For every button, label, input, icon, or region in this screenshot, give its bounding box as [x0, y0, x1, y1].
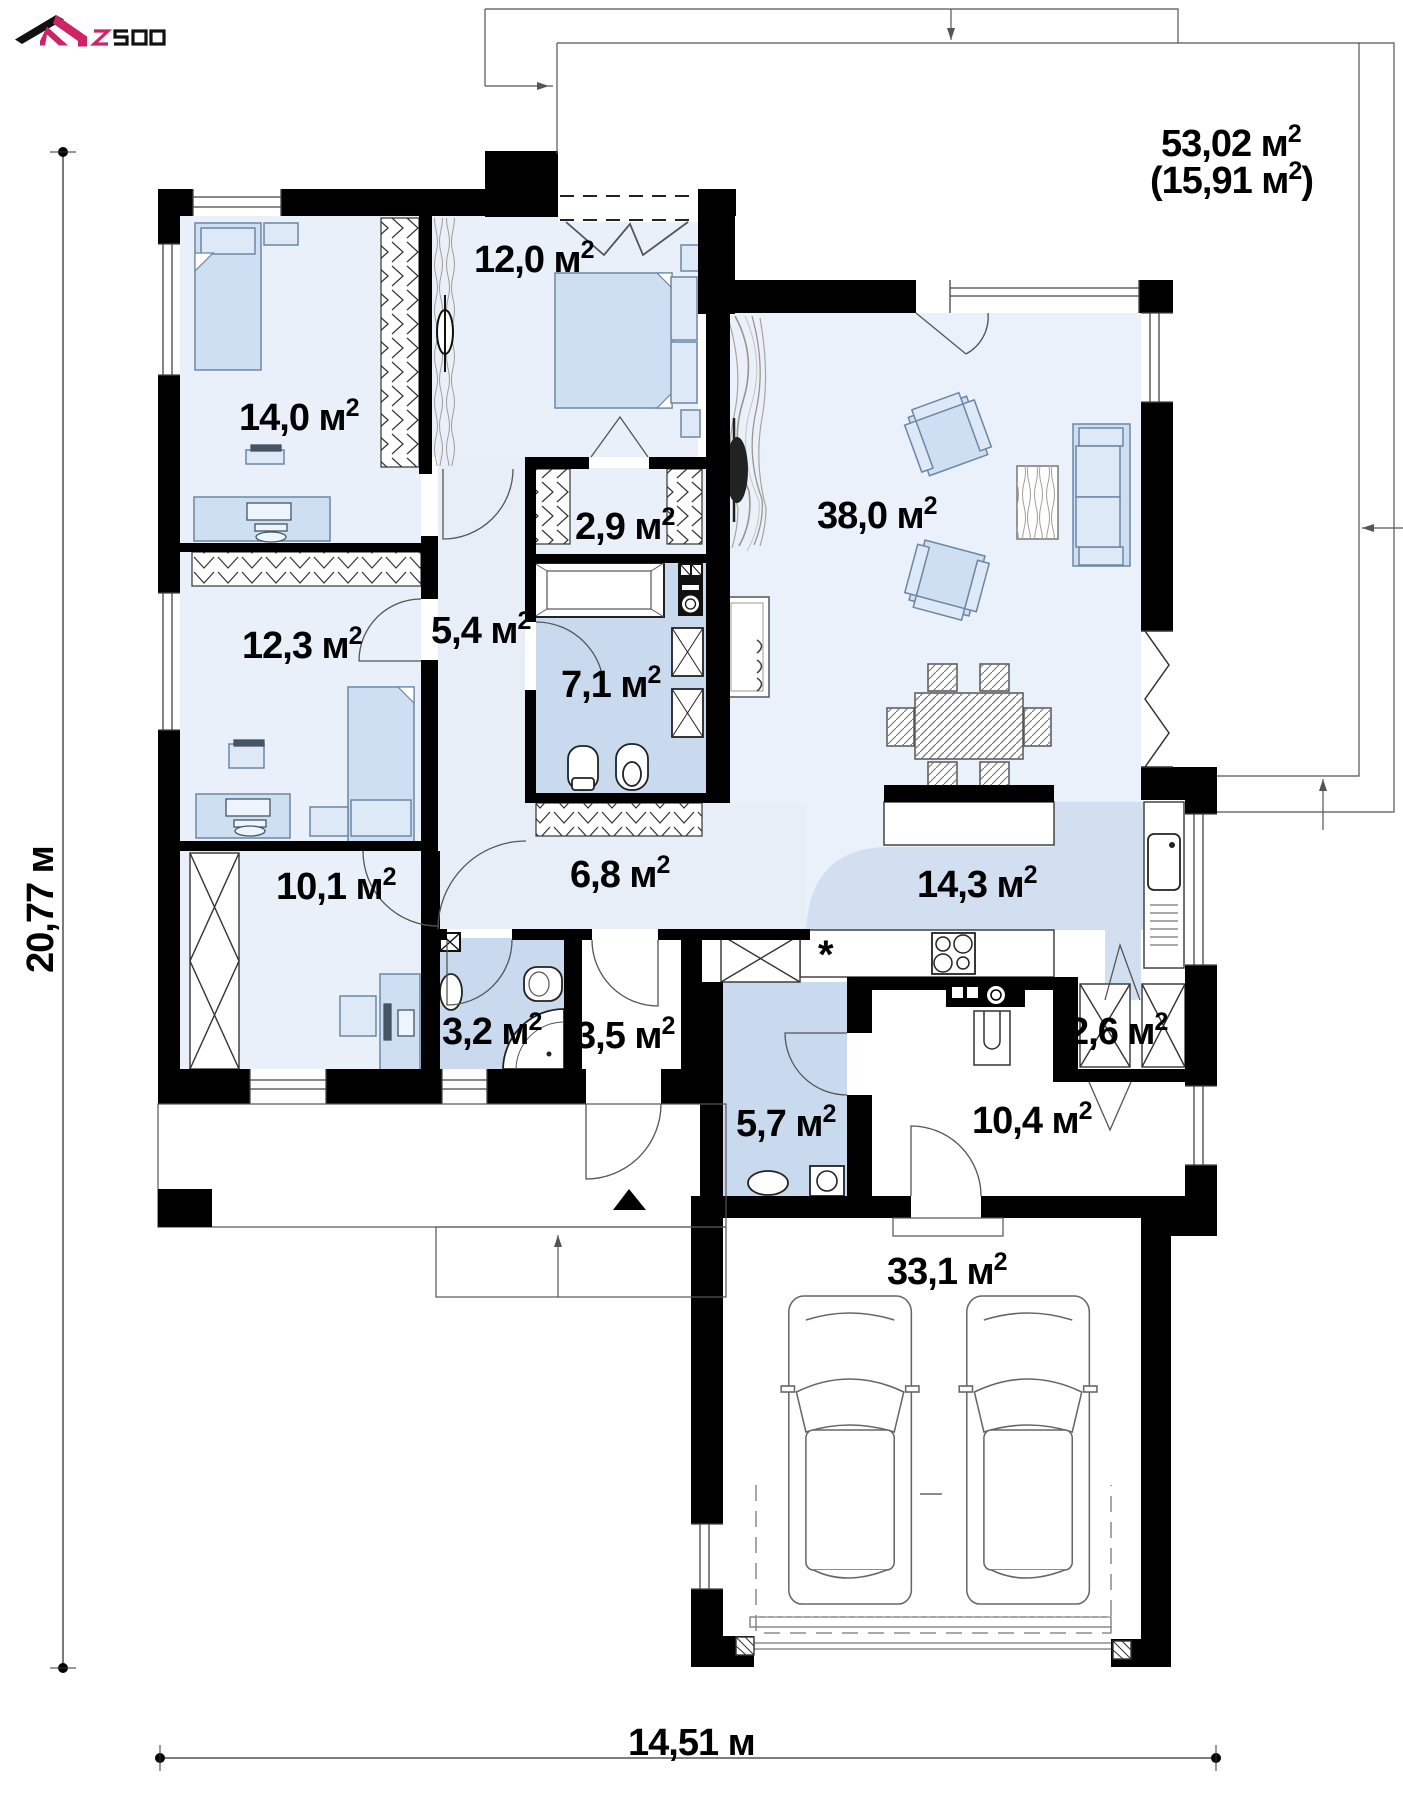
svg-text:53,02 м2: 53,02 м2 — [1161, 120, 1301, 165]
svg-text:20,77 м: 20,77 м — [20, 846, 62, 973]
svg-text:*: * — [818, 933, 834, 977]
svg-text:2,6 м2: 2,6 м2 — [1068, 1008, 1168, 1053]
svg-text:14,0 м2: 14,0 м2 — [239, 394, 359, 439]
svg-text:5,7 м2: 5,7 м2 — [736, 1100, 836, 1145]
svg-text:14,51 м: 14,51 м — [628, 1722, 755, 1764]
svg-text:7,1 м2: 7,1 м2 — [561, 661, 661, 706]
svg-text:3,5 м2: 3,5 м2 — [575, 1012, 675, 1057]
svg-text:12,3 м2: 12,3 м2 — [242, 622, 362, 667]
svg-text:14,3 м2: 14,3 м2 — [917, 861, 1037, 906]
svg-text:2,9 м2: 2,9 м2 — [575, 503, 675, 548]
svg-text:33,1 м2: 33,1 м2 — [887, 1248, 1007, 1293]
svg-text:12,0 м2: 12,0 м2 — [474, 236, 594, 281]
svg-text:5,4 м2: 5,4 м2 — [431, 607, 531, 652]
svg-text:10,1 м2: 10,1 м2 — [276, 863, 396, 908]
svg-text:10,4 м2: 10,4 м2 — [972, 1097, 1092, 1142]
svg-text:38,0 м2: 38,0 м2 — [817, 492, 937, 537]
svg-text:3,2 м2: 3,2 м2 — [442, 1008, 542, 1053]
svg-text:6,8 м2: 6,8 м2 — [570, 851, 670, 896]
